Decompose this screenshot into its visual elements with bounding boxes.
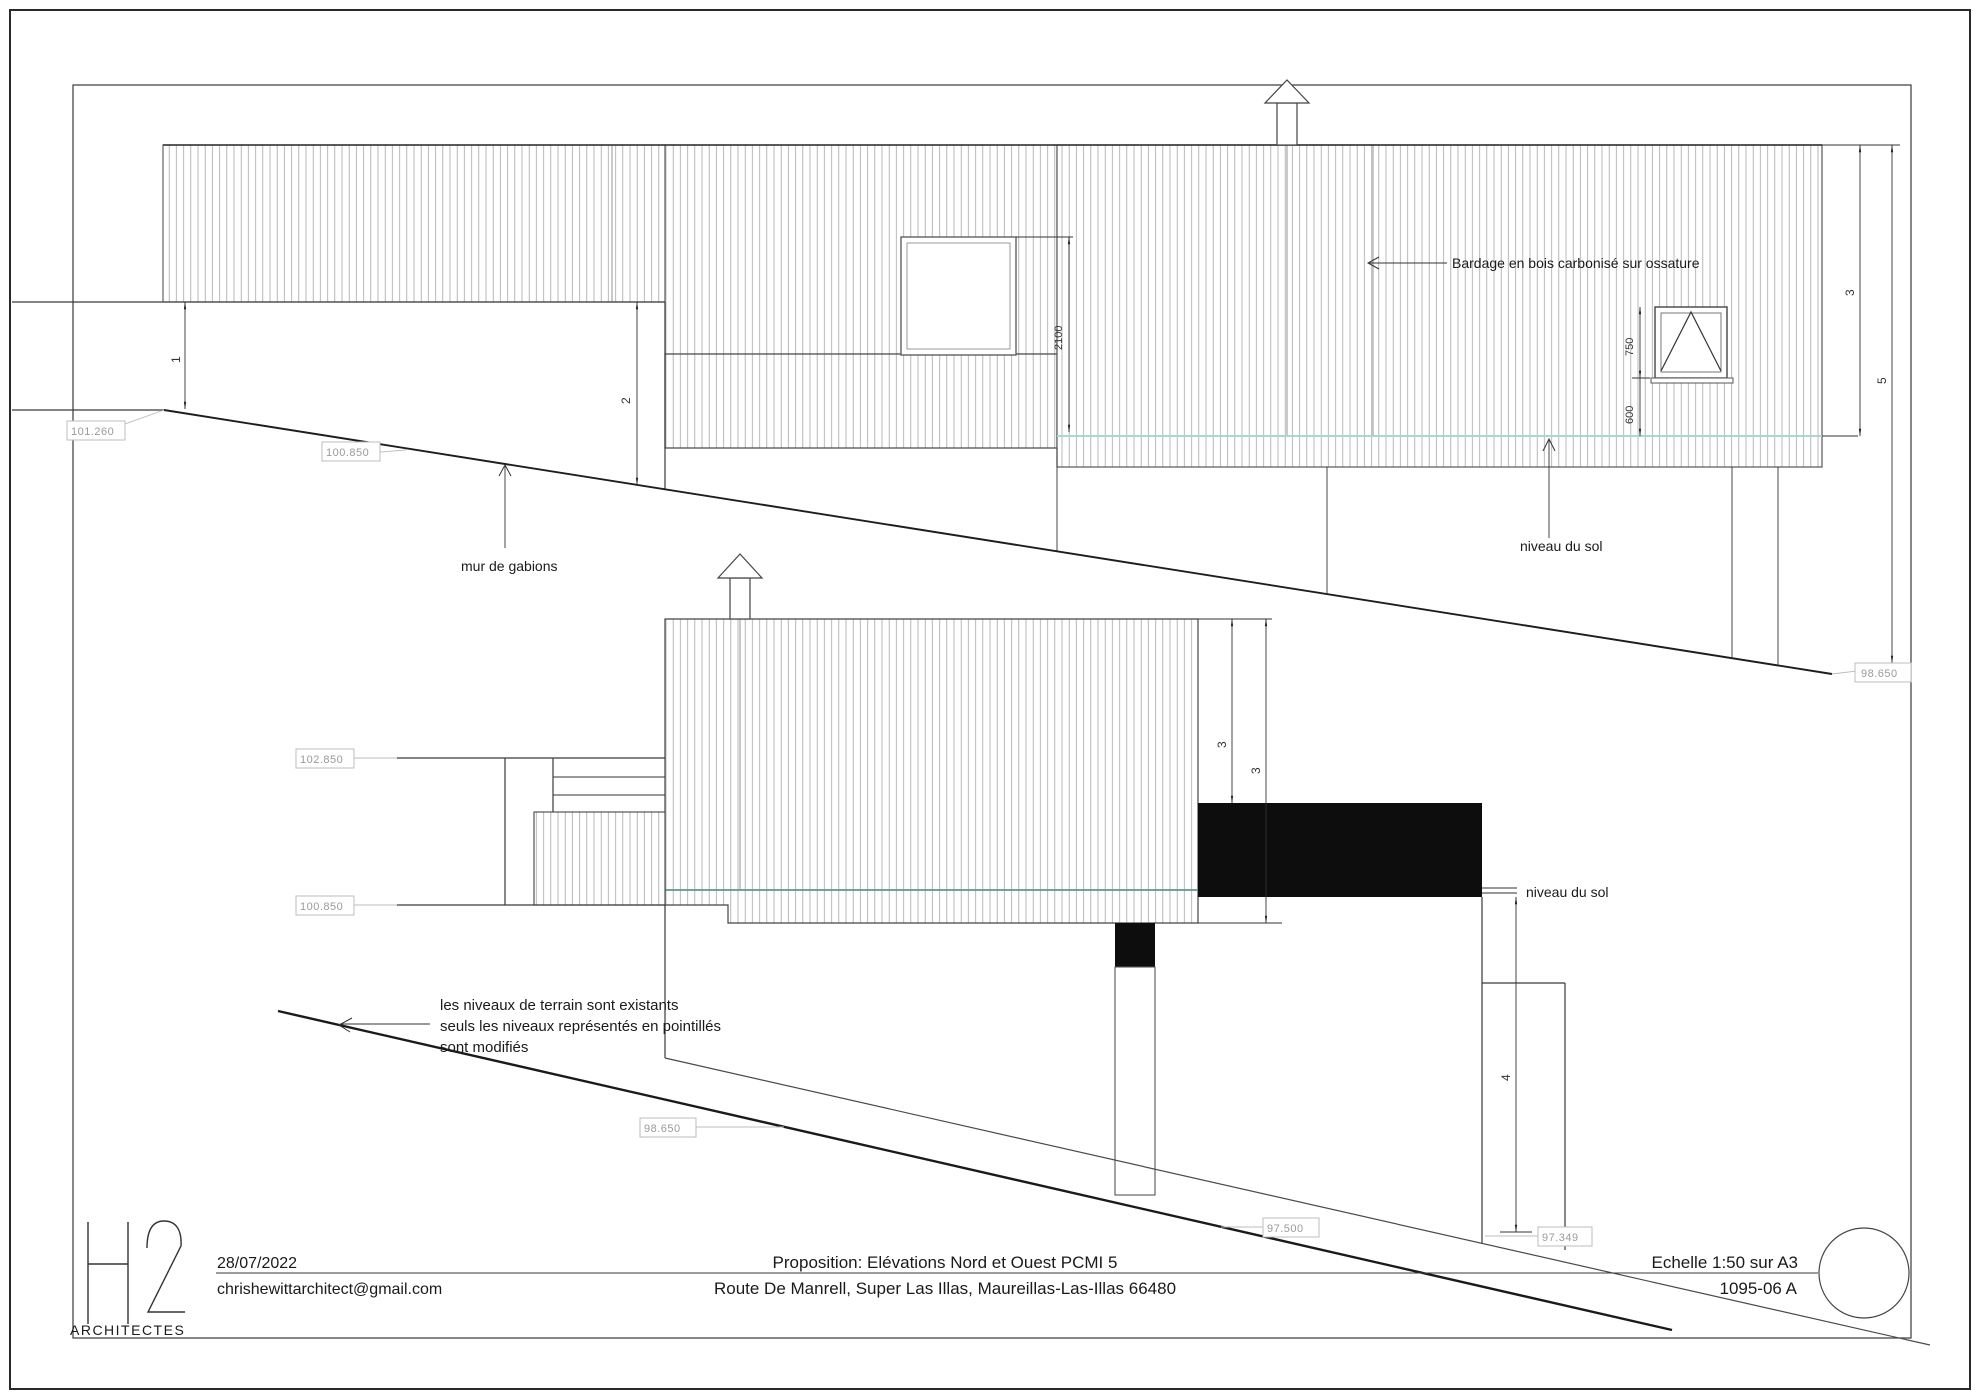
- drawing-address: Route De Manrell, Super Las Illas, Maure…: [714, 1279, 1176, 1298]
- svg-text:2100: 2100: [1053, 326, 1065, 350]
- svg-text:niveau du sol: niveau du sol: [1520, 538, 1603, 554]
- annotation-mur-de-gabions: mur de gabions: [461, 465, 558, 574]
- level-98-650-top: 98.650: [1832, 663, 1911, 682]
- door-opening: [901, 237, 1016, 355]
- svg-text:101.260: 101.260: [71, 426, 114, 438]
- svg-text:3: 3: [1249, 767, 1263, 774]
- svg-text:2: 2: [619, 397, 633, 404]
- pillar: [1115, 923, 1155, 1195]
- level-100-850-top: 100.850: [322, 442, 406, 461]
- svg-text:97.349: 97.349: [1542, 1232, 1579, 1244]
- dimension-key-3-top: 3: [1822, 145, 1900, 436]
- elevation-ouest: 3 3 4 102.850 100.850 98.650: [278, 554, 1930, 1345]
- balcony-volume: [1198, 803, 1482, 897]
- level-97-349: 97.349: [1485, 1227, 1592, 1246]
- dimension-key-2: 2: [619, 302, 637, 485]
- chimney-nord: [1265, 80, 1309, 145]
- svg-text:les niveaux de terrain sont ex: les niveaux de terrain sont existants: [440, 997, 678, 1014]
- dimension-key-4-bottom: 4: [1499, 897, 1532, 1232]
- level-100-850-bottom: 100.850: [296, 896, 397, 915]
- terrain-existing-line: [665, 1058, 1930, 1345]
- date-text: 28/07/2022: [217, 1255, 297, 1272]
- drawing-sheet: 1 2 2100 750 600 3: [0, 0, 1980, 1399]
- svg-text:3: 3: [1215, 741, 1229, 748]
- chimney-ouest: [718, 554, 762, 619]
- elevation-drawing-canvas: 1 2 2100 750 600 3: [0, 0, 1980, 1399]
- scale-text: Echelle 1:50 sur A3: [1652, 1253, 1798, 1272]
- email-text: chrishewittarchitect@gmail.com: [217, 1281, 442, 1298]
- svg-text:niveau du sol: niveau du sol: [1526, 884, 1609, 900]
- dimension-key-1: 1: [169, 302, 185, 409]
- svg-text:102.850: 102.850: [300, 754, 343, 766]
- dimension-key-5-top: 5: [1875, 145, 1905, 663]
- annotation-niveau-du-sol-bottom: niveau du sol: [1482, 884, 1609, 900]
- svg-text:mur de gabions: mur de gabions: [461, 558, 558, 574]
- h2-architectes-logo: ARCHITECTES: [70, 1221, 185, 1338]
- svg-text:97.500: 97.500: [1267, 1223, 1304, 1235]
- wall-lower-band: [665, 354, 1057, 448]
- svg-text:4: 4: [1499, 1074, 1513, 1081]
- svg-text:1: 1: [169, 356, 183, 363]
- stamp-circle: [1819, 1228, 1909, 1318]
- lower-terrace: [1482, 897, 1565, 1250]
- svg-text:750: 750: [1624, 338, 1636, 356]
- level-101-260: 101.260: [67, 410, 164, 440]
- wall-left-section: [163, 145, 665, 302]
- drawing-number-text: 1095-06 A: [1719, 1279, 1797, 1298]
- window-opening: [1651, 307, 1733, 383]
- svg-text:Bardage en bois carbonisé sur: Bardage en bois carbonisé sur ossature: [1452, 255, 1700, 271]
- drawing-title: Proposition: Elévations Nord et Ouest PC…: [773, 1253, 1118, 1272]
- svg-text:100.850: 100.850: [300, 901, 343, 913]
- window-sill: [1651, 378, 1733, 383]
- svg-text:seuls les niveaux représentés: seuls les niveaux représentés en pointil…: [440, 1018, 721, 1035]
- wall-ouest: [665, 619, 1198, 923]
- svg-text:ARCHITECTES: ARCHITECTES: [70, 1322, 185, 1338]
- elevation-nord: 1 2 2100 750 600 3: [12, 80, 1911, 682]
- annotation-terrain-note: les niveaux de terrain sont existants se…: [339, 997, 721, 1056]
- svg-text:600: 600: [1624, 406, 1636, 424]
- svg-text:3: 3: [1843, 289, 1857, 296]
- svg-text:100.850: 100.850: [326, 447, 369, 459]
- level-102-850: 102.850: [296, 749, 397, 768]
- svg-text:98.650: 98.650: [644, 1123, 681, 1135]
- svg-text:98.650: 98.650: [1861, 668, 1898, 680]
- stepped-retaining-walls: [397, 758, 665, 905]
- wall-right-section: [1057, 145, 1822, 467]
- svg-text:5: 5: [1875, 377, 1889, 384]
- level-97-500: 97.500: [1221, 1218, 1319, 1237]
- dimension-key-3a-bottom: 3: [1198, 619, 1272, 803]
- svg-text:sont modifiés: sont modifiés: [440, 1039, 528, 1056]
